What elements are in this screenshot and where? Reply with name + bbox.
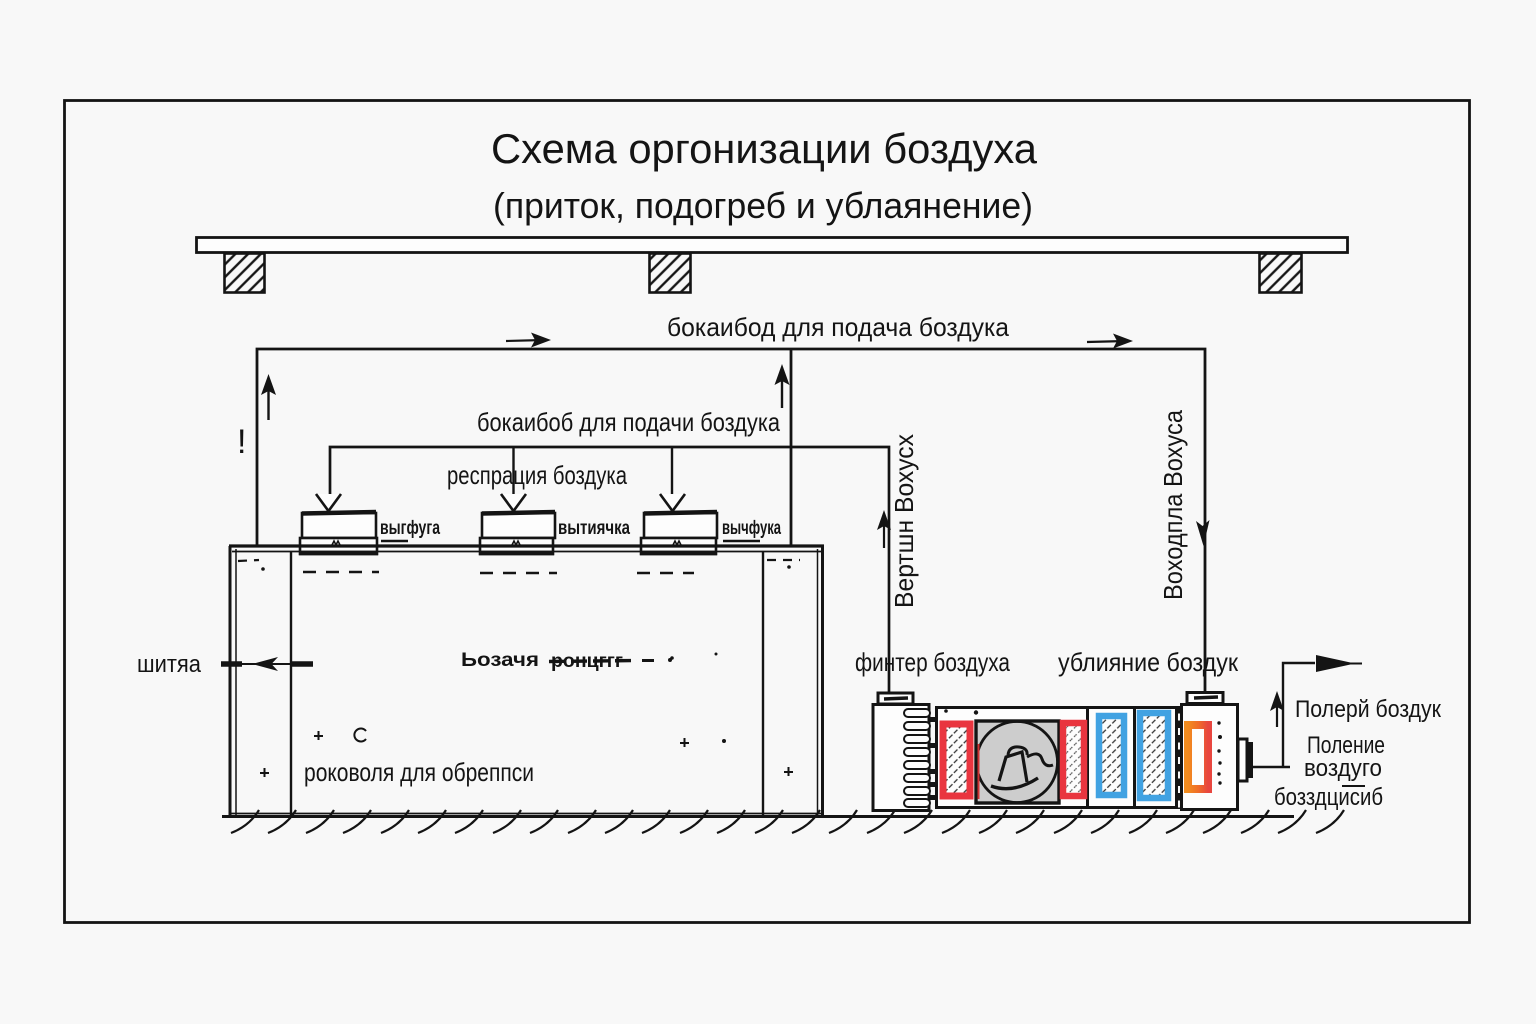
svg-text:вычфука: вычфука — [722, 518, 781, 539]
svg-text:вытиячка: вытиячка — [558, 518, 630, 539]
svg-text:роковоля для обреппси: роковоля для обреппси — [304, 757, 534, 787]
svg-text:бокаибод для подача боздука: бокаибод для подача боздука — [667, 312, 1010, 342]
svg-text:Схема оргонизации боздуха: Схема оргонизации боздуха — [491, 125, 1038, 172]
svg-text:выгфуга: выгфуга — [380, 518, 440, 539]
svg-text:Полерй боздук: Полерй боздук — [1295, 696, 1441, 723]
svg-text:Ьозачя: Ьозачя — [461, 650, 539, 671]
svg-text:Воходпла Вохуса: Воходпла Вохуса — [1158, 410, 1188, 600]
svg-text:Вертшн Вохусх: Вертшн Вохусх — [889, 434, 919, 608]
svg-text:воздуго: воздуго — [1304, 755, 1382, 782]
svg-text:ублияние боздук: ублияние боздук — [1058, 647, 1239, 677]
svg-text:шитяа: шитяа — [137, 651, 202, 678]
svg-text:респрация боздука: респрация боздука — [447, 460, 627, 490]
svg-text:!: ! — [237, 423, 246, 461]
svg-text:финтер боздуха: финтер боздуха — [855, 647, 1010, 677]
svg-text:(приток, подогреб и ублаяне: (приток, подогреб и ублаянение) — [493, 185, 1033, 226]
svg-text:бозздцисиб: бозздцисиб — [1274, 784, 1383, 811]
svg-text:бокаибоб для подачи боздука: бокаибоб для подачи боздука — [477, 407, 780, 437]
